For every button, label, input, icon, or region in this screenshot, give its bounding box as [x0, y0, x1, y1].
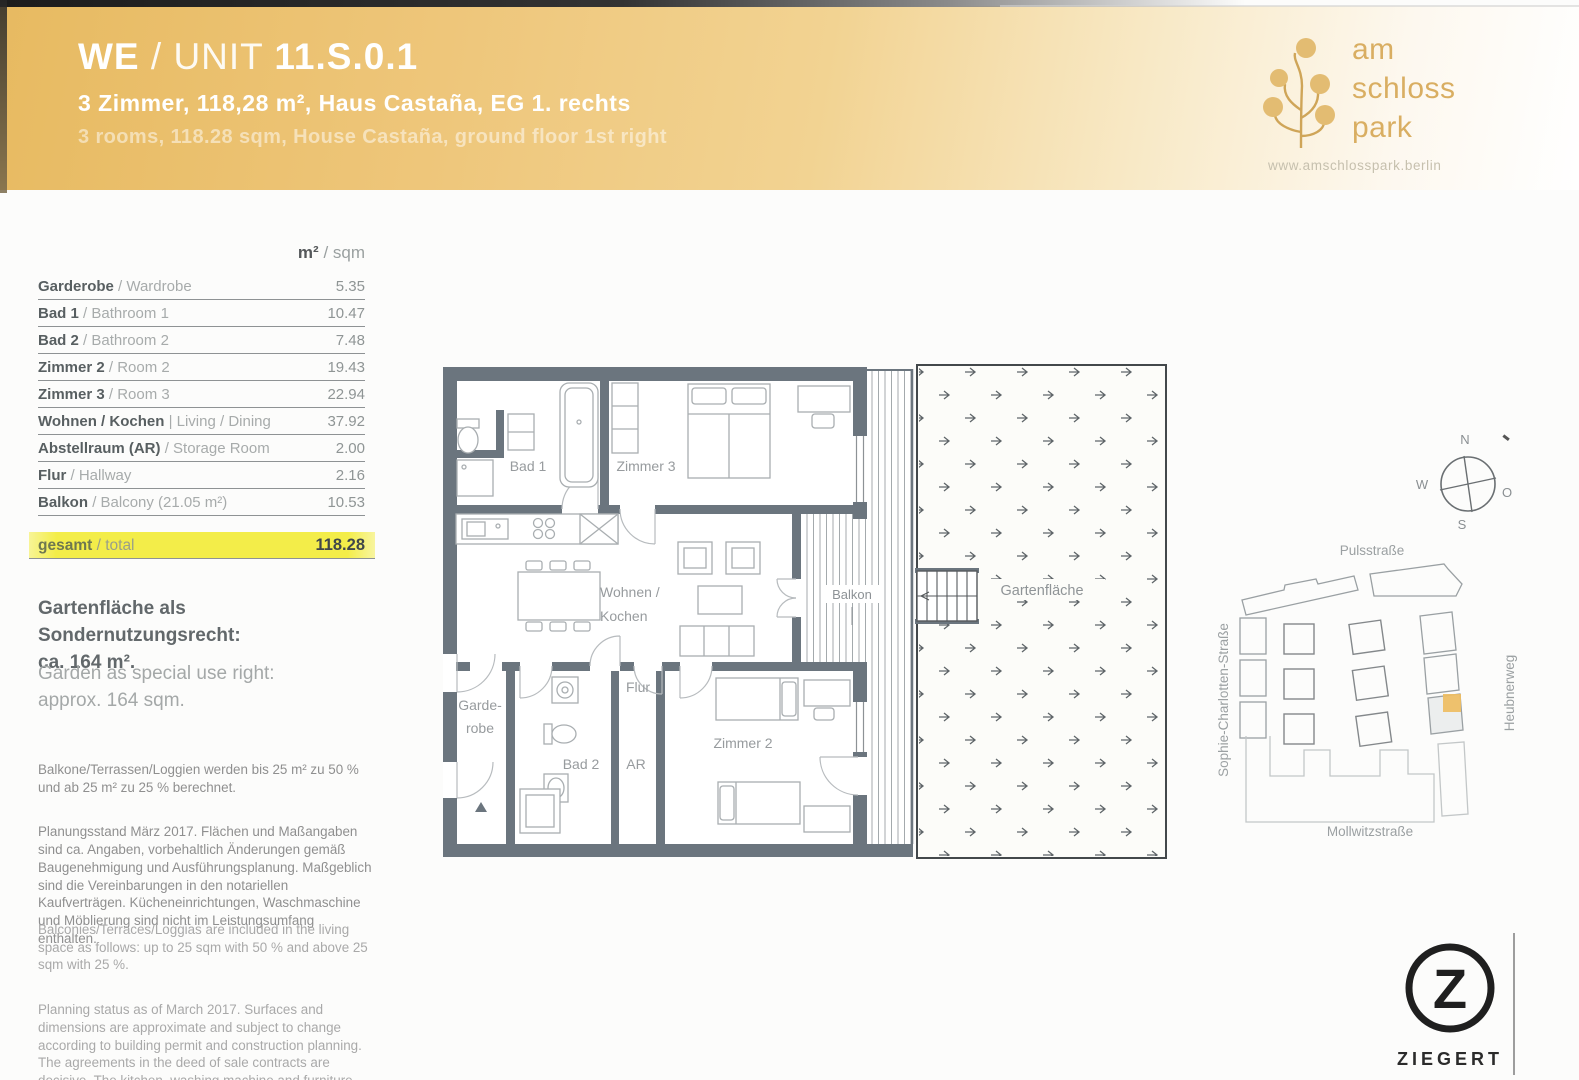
unit-subtitle-en: 3 rooms, 118.28 sqm, House Castaña, grou…: [78, 126, 667, 149]
room-area-value: 37.92: [327, 413, 365, 430]
unit-title-number: 11.S.0.1: [274, 36, 418, 77]
ziegert-logo-icon: Z: [1400, 938, 1500, 1038]
unit-title-we: WE: [78, 36, 140, 77]
room-label-flur: Flur: [626, 679, 650, 695]
garden-note-en: Garden as special use right: approx. 164…: [38, 660, 378, 714]
site-buildings-inner: [1284, 620, 1398, 746]
unit-title: WE / UNIT 11.S.0.1: [78, 36, 667, 78]
room-name-en: | Living / Dining: [169, 413, 271, 430]
room-label-garderobe-1: Garde-: [458, 697, 502, 713]
garden-label: Gartenfläche: [1000, 583, 1083, 599]
room-label-zimmer2: Zimmer 2: [713, 735, 772, 751]
scan-edge-top-right: [1000, 5, 1579, 7]
scan-edge-left: [0, 0, 7, 193]
compass-east-label: O: [1502, 485, 1512, 500]
compass-south-label: S: [1458, 517, 1467, 532]
room-name-en: / Wardrobe: [118, 278, 192, 295]
room-label-ar: AR: [626, 756, 645, 772]
brand-tree-icon: [1262, 34, 1342, 152]
area-table-unit-header: m² / sqm: [38, 243, 365, 273]
room-name-en: / Room 3: [109, 386, 170, 403]
street-label-right: Heubnerweg: [1502, 655, 1517, 732]
table-row: Abstellraum (AR) / Storage Room 2.00: [38, 435, 365, 462]
room-name-en: / Bathroom 1: [83, 305, 169, 322]
garden-stairs: [915, 568, 979, 624]
table-row: Zimmer 2 / Room 2 19.43: [38, 354, 365, 381]
room-label-bad2: Bad 2: [563, 756, 600, 772]
room-name-de: Flur: [38, 467, 66, 484]
room-area-value: 2.00: [336, 440, 365, 457]
garden-area: Gartenfläche: [915, 365, 1166, 858]
legal-text-en: Balconies/Terraces/Loggias are included …: [38, 903, 372, 1080]
compass-west-label: W: [1416, 477, 1429, 492]
unit-subtitle-de: 3 Zimmer, 118,28 m², Haus Castaña, EG 1.…: [78, 90, 667, 117]
unit-header-m2: m²: [298, 243, 319, 262]
ziegert-logo-letter: Z: [1433, 957, 1467, 1020]
room-label-garderobe-2: robe: [466, 720, 494, 736]
total-area-value: 118.28: [315, 536, 365, 555]
table-row: Wohnen / Kochen | Living / Dining 37.92: [38, 408, 365, 435]
unit-header-sqm: / sqm: [323, 243, 365, 262]
legal-en-paragraph1: Balconies/Terraces/Loggias are included …: [38, 921, 372, 974]
ziegert-name: ZIEGERT: [1392, 1049, 1508, 1070]
brand-website: www.amschlosspark.berlin: [1268, 158, 1441, 173]
room-name-de: Wohnen / Kochen: [38, 413, 164, 430]
room-name-de: Bad 2: [38, 332, 79, 349]
table-total-row-highlighted: gesamt / total 118.28: [29, 532, 375, 559]
room-area-value: 7.48: [336, 332, 365, 349]
room-label-wohnen-1: Wohnen /: [600, 584, 660, 600]
street-label-top: Pulsstraße: [1340, 543, 1405, 558]
table-row: Bad 1 / Bathroom 1 10.47: [38, 300, 365, 327]
room-name-en: / Room 2: [109, 359, 170, 376]
room-label-wohnen-2: Kochen: [600, 608, 647, 624]
site-unit-marker: [1443, 694, 1461, 712]
site-location-map: Pulsstraße Mollwitzstraße Sophie-Charlot…: [1212, 538, 1567, 863]
room-label-zimmer3: Zimmer 3: [616, 458, 675, 474]
ziegert-brand: Z ZIEGERT: [1392, 938, 1508, 1070]
table-row: Flur / Hallway 2.16: [38, 462, 365, 489]
room-name-de: Zimmer 2: [38, 359, 105, 376]
room-area-value: 22.94: [327, 386, 365, 403]
site-buildings-right: [1420, 612, 1463, 734]
room-name-de: Bad 1: [38, 305, 79, 322]
table-row: Garderobe / Wardrobe 5.35: [38, 273, 365, 300]
table-row: Bad 2 / Bathroom 2 7.48: [38, 327, 365, 354]
room-name-de: Balkon: [38, 494, 88, 511]
table-row: Balkon / Balcony (21.05 m²) 10.53: [38, 489, 365, 516]
room-name-en: / Storage Room: [165, 440, 270, 457]
header-band: WE / UNIT 11.S.0.1 3 Zimmer, 118,28 m², …: [0, 6, 1579, 190]
brand-name-line3: park: [1352, 108, 1456, 147]
brand-name-line2: schloss: [1352, 69, 1456, 108]
street-labels: Pulsstraße Mollwitzstraße Sophie-Charlot…: [1216, 543, 1517, 839]
street-label-left: Sophie-Charlotten-Straße: [1216, 623, 1231, 777]
scan-edge-vertical-line: [1513, 933, 1515, 1075]
room-area-value: 19.43: [327, 359, 365, 376]
room-name-de: Zimmer 3: [38, 386, 105, 403]
floorplan-drawing: Gartenfläche: [440, 362, 1182, 864]
room-label-bad1: Bad 1: [510, 458, 547, 474]
site-buildings-bottom: [1246, 736, 1468, 822]
compass-north-label: N: [1460, 432, 1469, 447]
brand-name: am schloss park: [1352, 30, 1456, 147]
legal-de-paragraph1: Balkone/Terrassen/Loggien werden bis 25 …: [38, 761, 372, 797]
unit-title-unit: UNIT: [173, 36, 263, 77]
room-name-en: / Bathroom 2: [83, 332, 169, 349]
room-name-de: Abstellraum (AR): [38, 440, 161, 457]
room-name-en: / Balcony (21.05 m²): [92, 494, 227, 511]
room-area-value: 5.35: [336, 278, 365, 295]
table-row: Zimmer 3 / Room 3 22.94: [38, 381, 365, 408]
scan-speck: [1502, 434, 1509, 441]
total-label-de: gesamt: [38, 537, 92, 554]
unit-title-sep: /: [151, 36, 162, 77]
compass-rose: N W O S: [1408, 428, 1526, 540]
room-name-de: Garderobe: [38, 278, 114, 295]
room-area-value: 2.16: [336, 467, 365, 484]
total-label-en: / total: [97, 537, 135, 554]
area-table: m² / sqm Garderobe / Wardrobe 5.35 Bad 1…: [38, 243, 365, 559]
room-name-en: / Hallway: [71, 467, 132, 484]
balcony-label: Balkon: [832, 587, 872, 602]
room-area-value: 10.53: [327, 494, 365, 511]
room-area-value: 10.47: [327, 305, 365, 322]
floorplan-sheet: WE / UNIT 11.S.0.1 3 Zimmer, 118,28 m², …: [0, 0, 1579, 1080]
brand-name-line1: am: [1352, 30, 1456, 69]
header-text: WE / UNIT 11.S.0.1 3 Zimmer, 118,28 m², …: [78, 36, 667, 149]
street-label-bottom: Mollwitzstraße: [1327, 824, 1413, 839]
legal-en-paragraph2: Planning status as of March 2017. Surfac…: [38, 1001, 372, 1080]
